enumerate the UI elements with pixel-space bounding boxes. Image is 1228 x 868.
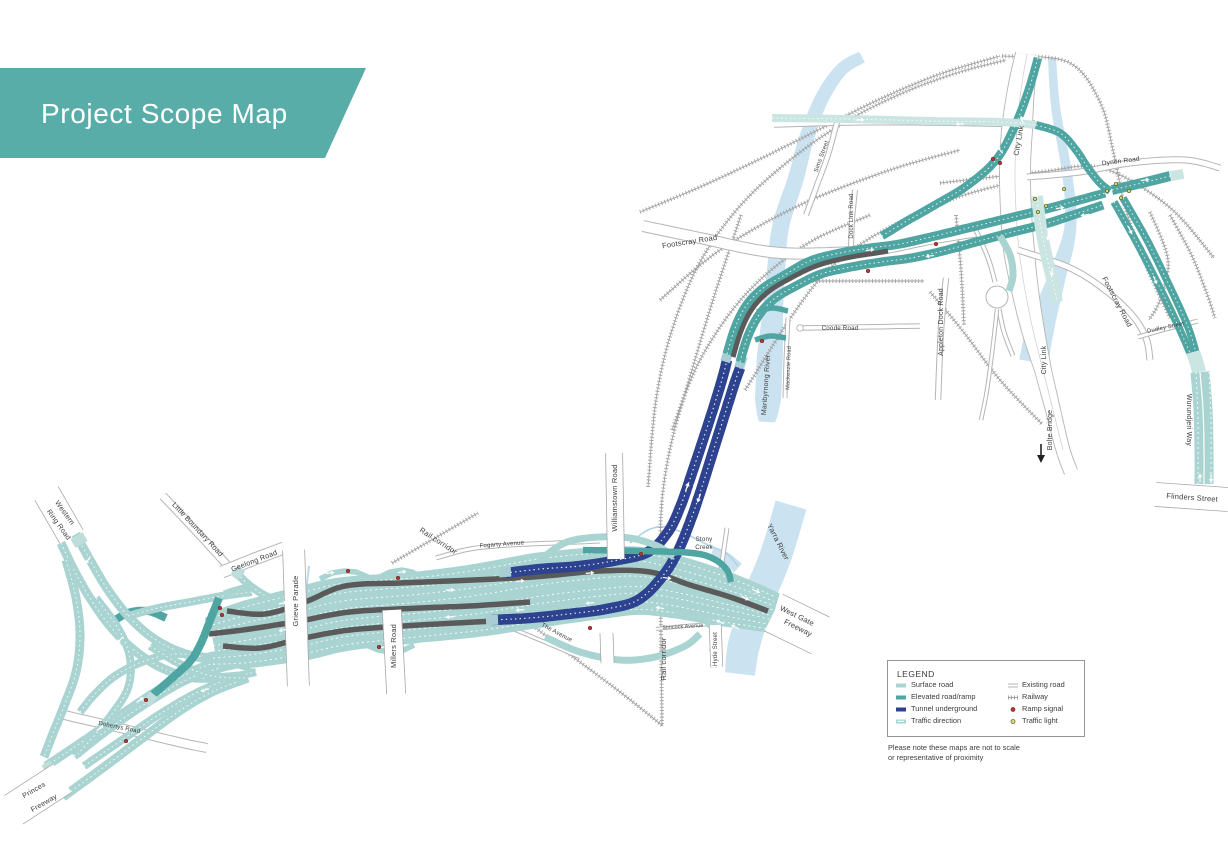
svg-text:LEGEND: LEGEND [897,669,935,679]
svg-text:Traffic direction: Traffic direction [911,716,961,725]
svg-text:Rail corridor: Rail corridor [659,637,668,680]
svg-text:Bolte Bridge: Bolte Bridge [1047,410,1054,451]
svg-text:Appleton Dock Road: Appleton Dock Road [938,288,945,356]
svg-text:Existing road: Existing road [1022,680,1065,689]
svg-text:Wurundjeri Way: Wurundjeri Way [1185,394,1192,447]
svg-text:Grieve Parade: Grieve Parade [291,576,300,627]
svg-text:or representative of proximity: or representative of proximity [888,753,984,762]
svg-text:Williamstown Road: Williamstown Road [610,464,619,531]
svg-text:Surface road: Surface road [911,680,953,689]
svg-text:Millers Road: Millers Road [389,624,398,668]
svg-text:Elevated road/ramp: Elevated road/ramp [911,692,976,701]
svg-text:Project Scope Map: Project Scope Map [41,98,288,129]
svg-text:Please note these maps are not: Please note these maps are not to scale [888,743,1020,752]
svg-text:City Link: City Link [1041,345,1048,374]
svg-text:Railway: Railway [1022,692,1048,701]
svg-text:Stony: Stony [696,536,714,543]
svg-text:Ramp signal: Ramp signal [1022,704,1063,713]
svg-text:Coode Road: Coode Road [822,325,859,332]
svg-text:Tunnel underground: Tunnel underground [911,704,977,713]
svg-text:Dock Link Road: Dock Link Road [849,193,855,238]
svg-text:Hyde Street: Hyde Street [713,632,719,666]
svg-text:Creek: Creek [695,544,713,551]
svg-text:Traffic light: Traffic light [1022,716,1058,725]
